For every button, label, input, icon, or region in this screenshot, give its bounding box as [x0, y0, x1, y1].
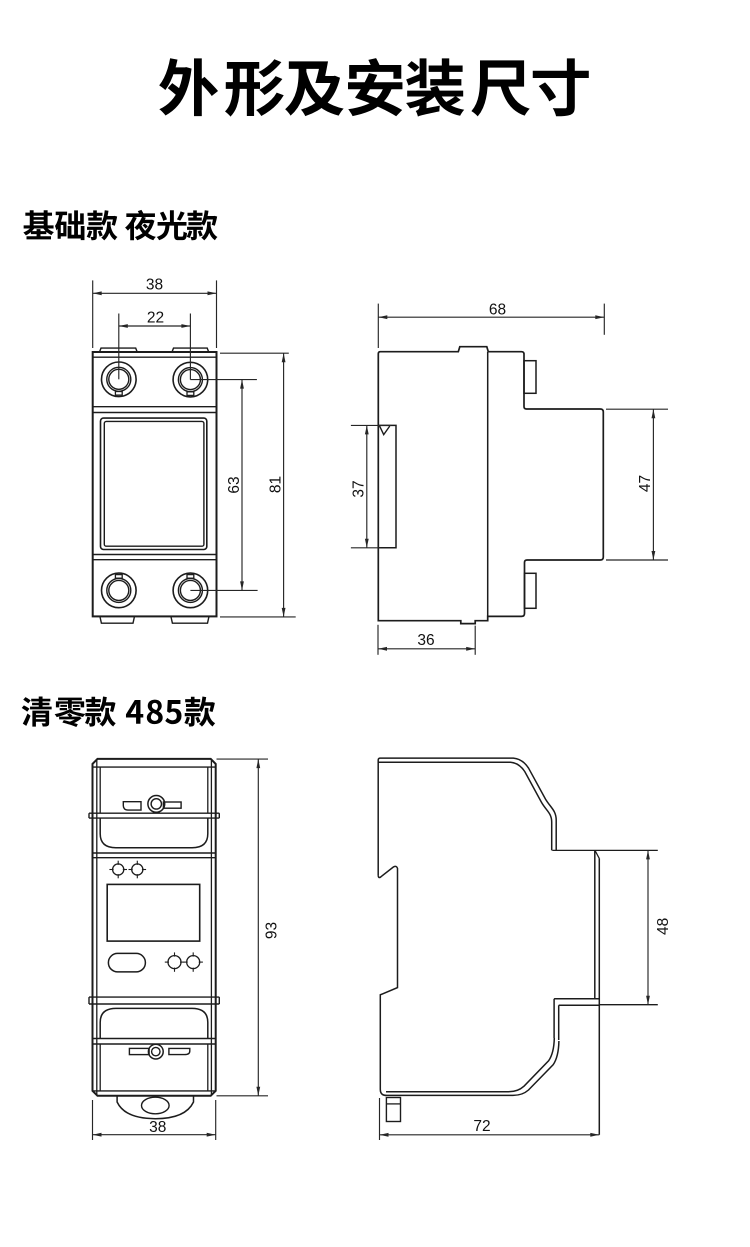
svg-text:72: 72: [473, 1118, 490, 1135]
svg-text:63: 63: [226, 476, 243, 493]
svg-text:38: 38: [146, 277, 163, 294]
svg-text:22: 22: [147, 310, 164, 327]
svg-text:93: 93: [263, 922, 280, 939]
svg-text:47: 47: [637, 475, 654, 492]
svg-text:81: 81: [268, 476, 285, 493]
svg-text:48: 48: [655, 918, 672, 935]
svg-text:37: 37: [351, 480, 368, 497]
svg-text:68: 68: [489, 301, 506, 318]
svg-text:38: 38: [149, 1119, 166, 1136]
svg-text:36: 36: [417, 632, 434, 649]
